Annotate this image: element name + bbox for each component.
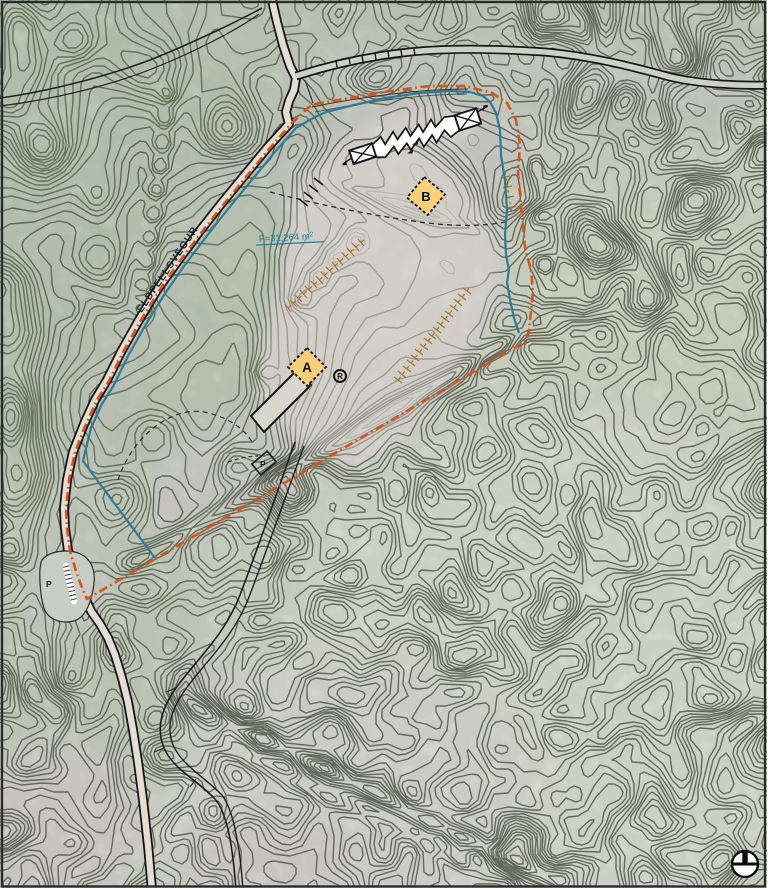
svg-text:B: B — [421, 189, 430, 204]
svg-text:R: R — [337, 372, 343, 381]
svg-text:P: P — [46, 579, 52, 589]
svg-text:P: P — [260, 459, 266, 469]
svg-text:A: A — [302, 360, 312, 375]
